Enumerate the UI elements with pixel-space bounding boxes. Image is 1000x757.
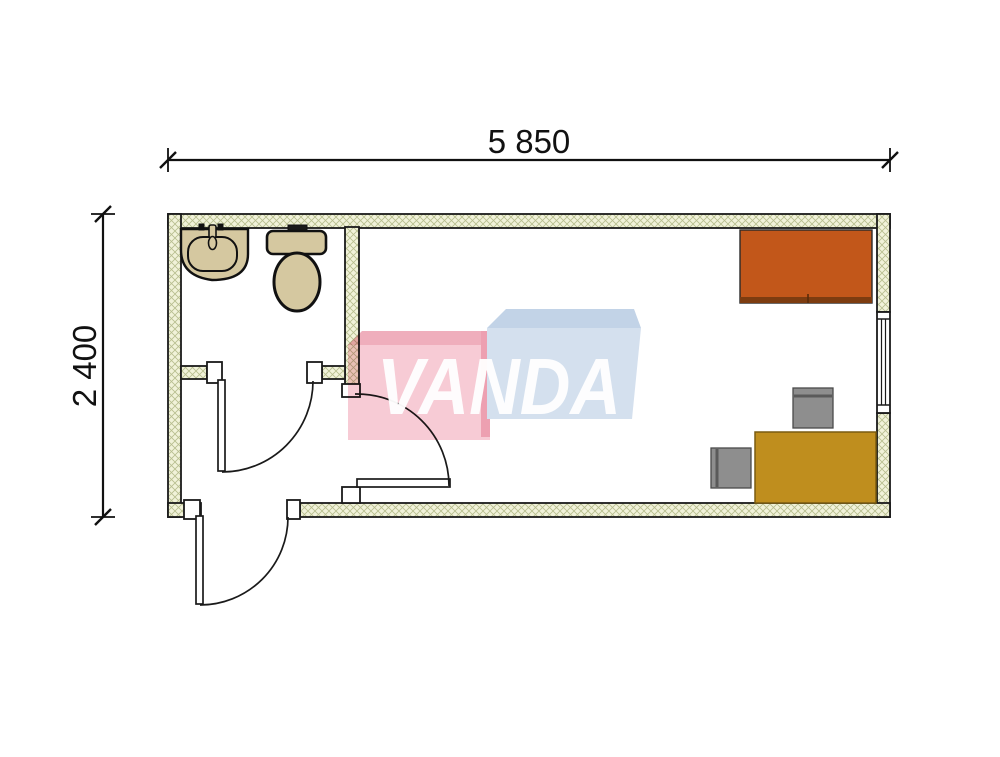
faucet-spout	[209, 237, 217, 250]
cabinet	[740, 230, 872, 303]
faucet-handle-left	[199, 224, 204, 230]
bathroom-door-jamb-right	[307, 362, 322, 383]
entrance-door-jamb-right	[287, 500, 300, 519]
watermark-blue-top-face	[487, 309, 641, 328]
window-frame	[877, 312, 890, 413]
entrance-door-swing-arc	[200, 517, 288, 605]
door-jambs	[184, 362, 360, 519]
wall-bottom-right	[300, 503, 890, 517]
partition-hall-left	[181, 366, 207, 379]
toilet-tank	[267, 231, 326, 254]
desk	[755, 432, 876, 503]
wall-top	[168, 214, 890, 228]
wall-left	[168, 214, 181, 517]
furniture	[711, 230, 876, 503]
entrance-door-leaf	[196, 516, 203, 604]
window	[877, 312, 890, 413]
chair-top	[793, 388, 833, 428]
bathroom-fixtures	[181, 224, 326, 311]
faucet-handle-right	[218, 224, 223, 230]
cabinet-front-edge	[740, 297, 872, 303]
toilet-bowl	[274, 253, 320, 311]
height-dimension-label: 2 400	[66, 325, 103, 408]
watermark-logo-text: VANDA	[377, 342, 621, 431]
wall-right-lower	[877, 413, 890, 517]
floor-plan-drawing: 5 850 2 400	[0, 0, 1000, 757]
office-door-jamb-bottom	[342, 487, 360, 503]
bathroom-door-leaf	[218, 380, 225, 471]
wall-right-upper	[877, 214, 890, 312]
partition-hall-right	[322, 366, 345, 379]
floor-plan-canvas: 5 850 2 400	[0, 0, 1000, 757]
office-door-leaf	[357, 479, 450, 487]
bathroom-door-swing-arc	[222, 381, 313, 472]
width-dimension-label: 5 850	[488, 123, 571, 160]
